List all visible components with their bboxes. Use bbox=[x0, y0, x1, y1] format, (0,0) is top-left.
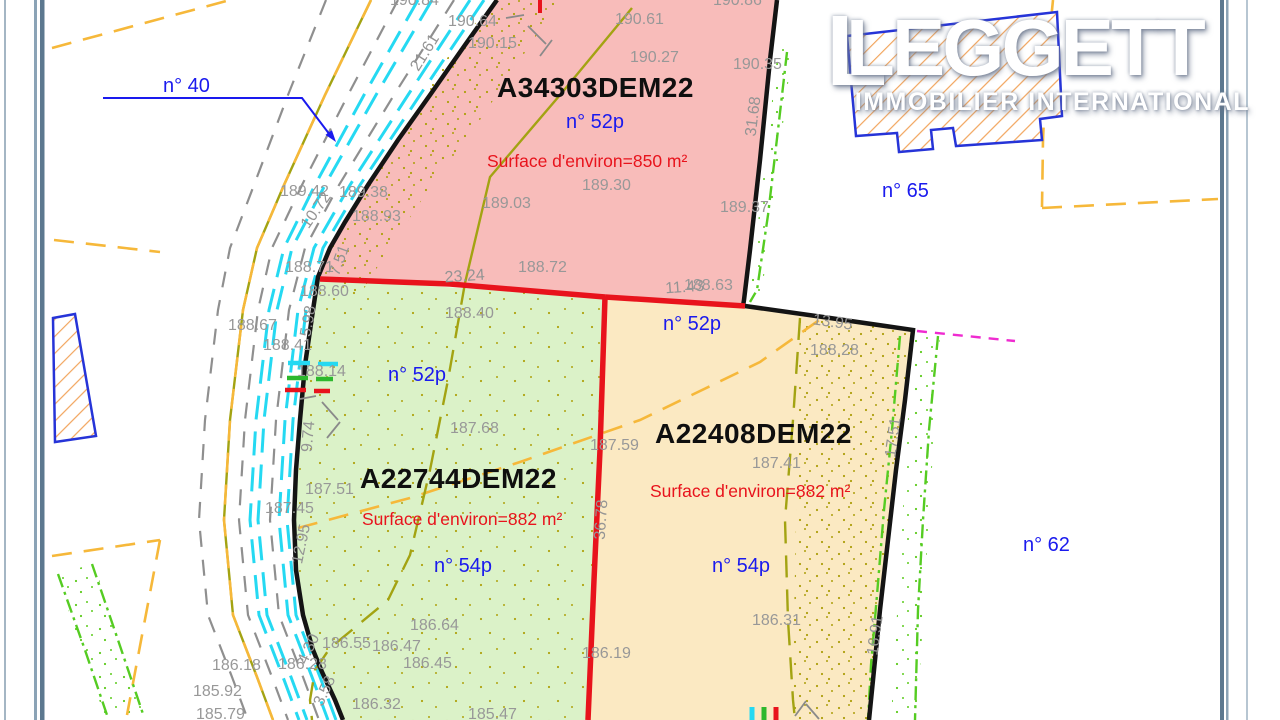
elevation-label: 187.41 bbox=[752, 455, 801, 472]
elevation-label: 190.61 bbox=[615, 11, 664, 28]
elevation-label: 188.40 bbox=[445, 305, 494, 322]
dimension-label: 23.24 bbox=[444, 267, 485, 287]
parcel-surface-label: Surface d'environ=882 m² bbox=[362, 509, 562, 529]
plan-drawing: 190.84190.86190.64190.15190.61190.27190.… bbox=[0, 0, 1280, 720]
elevation-label: 190.64 bbox=[448, 13, 497, 30]
neighbor-parcel-label: n° 40 bbox=[163, 75, 210, 97]
elevation-label: 190.84 bbox=[390, 0, 439, 9]
building-footprint bbox=[53, 314, 96, 442]
orange-dashed-line bbox=[52, 0, 230, 48]
parcel-id-label: A34303DEM22 bbox=[497, 72, 694, 103]
elevation-label: 189.38 bbox=[339, 184, 388, 201]
parcel-id-label: A22744DEM22 bbox=[360, 463, 557, 494]
elevation-label: 186.32 bbox=[352, 696, 401, 713]
parcel-surface-label: Surface d'environ=850 m² bbox=[487, 151, 687, 171]
parcel-id-label: A22408DEM22 bbox=[655, 418, 852, 449]
elevation-label: 190.35 bbox=[733, 56, 782, 73]
parcel-surface-label: Surface d'environ=882 m² bbox=[650, 481, 850, 501]
parcel-number-label: n° 54p bbox=[434, 555, 492, 577]
cadastral-survey-plan: 190.84190.86190.64190.15190.61190.27190.… bbox=[0, 0, 1280, 720]
elevation-label: 185.47 bbox=[468, 706, 517, 720]
elevation-label: 188.71 bbox=[285, 259, 334, 276]
elevation-label: 187.59 bbox=[590, 437, 639, 454]
elevation-label: 188.41 bbox=[263, 337, 312, 354]
elevation-label: 190.15 bbox=[468, 35, 517, 52]
elevation-label: 189.30 bbox=[582, 177, 631, 194]
elevation-label: 188.93 bbox=[352, 208, 401, 225]
dimension-label: 36.78 bbox=[592, 499, 612, 540]
elevation-label: 187.51 bbox=[305, 481, 354, 498]
elevation-label: 188.67 bbox=[228, 317, 277, 334]
orange-dashed-line bbox=[52, 540, 160, 556]
elevation-label: 190.86 bbox=[713, 0, 762, 9]
orange-dashed-line bbox=[1042, 199, 1218, 208]
neighbor-parcel-label: n° 65 bbox=[882, 180, 929, 202]
elevation-label: 186.64 bbox=[410, 617, 459, 634]
elevation-label: 189.37 bbox=[720, 199, 769, 216]
elevation-label: 186.47 bbox=[372, 638, 421, 655]
dimension-label: 11.43 bbox=[665, 278, 705, 298]
neighbor-parcel-label: n° 62 bbox=[1023, 534, 1070, 556]
parcel-number-label: n° 52p bbox=[566, 111, 624, 133]
elevation-label: 187.45 bbox=[265, 500, 314, 517]
elevation-label: 186.55 bbox=[322, 635, 371, 652]
elevation-label: 188.14 bbox=[297, 363, 346, 380]
dimension-label: 9.74 bbox=[299, 420, 319, 453]
elevation-label: 190.27 bbox=[630, 49, 679, 66]
elevation-label: 185.79 bbox=[196, 706, 245, 720]
elevation-label: 188.72 bbox=[518, 259, 567, 276]
elevation-label: 189.03 bbox=[482, 195, 531, 212]
elevation-label: 186.45 bbox=[403, 655, 452, 672]
elevation-label: 186.31 bbox=[752, 612, 801, 629]
orange-dashed-line bbox=[54, 240, 160, 252]
building-footprint bbox=[847, 12, 1062, 152]
elevation-label: 186.19 bbox=[582, 645, 631, 662]
elevation-label: 186.18 bbox=[212, 657, 261, 674]
elevation-label: 188.28 bbox=[810, 342, 859, 359]
parcel-number-label: n° 52p bbox=[663, 313, 721, 335]
elevation-label: 185.92 bbox=[193, 683, 242, 700]
elevation-label: 187.68 bbox=[450, 420, 499, 437]
elevation-label: 188.60 bbox=[300, 283, 349, 300]
parcel-number-label: n° 54p bbox=[712, 555, 770, 577]
parcel-number-label: n° 52p bbox=[388, 364, 446, 386]
road-number-leader bbox=[103, 98, 336, 142]
